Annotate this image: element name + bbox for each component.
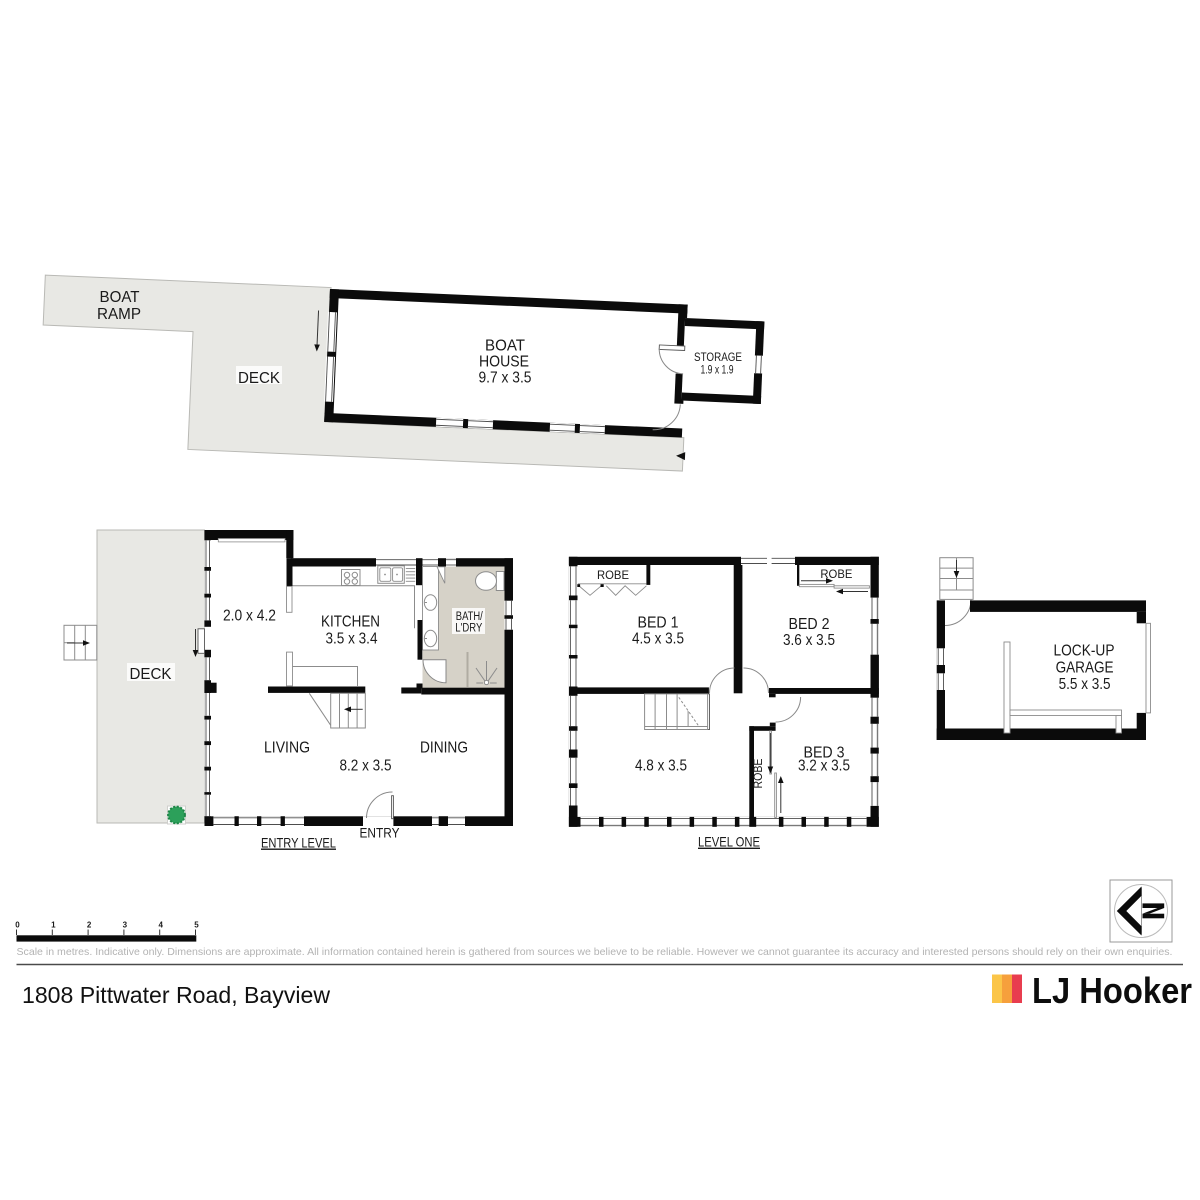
svg-text:5.5 x 3.5: 5.5 x 3.5: [1059, 676, 1111, 693]
svg-text:3: 3: [123, 921, 128, 930]
svg-text:LEVEL ONE: LEVEL ONE: [698, 834, 760, 850]
svg-text:DECK: DECK: [130, 666, 173, 683]
svg-text:4.8 x 3.5: 4.8 x 3.5: [635, 758, 687, 775]
svg-text:9.7 x 3.5: 9.7 x 3.5: [479, 370, 532, 387]
svg-text:3.5 x 3.4: 3.5 x 3.4: [326, 631, 378, 648]
svg-text:3.6 x 3.5: 3.6 x 3.5: [783, 632, 835, 649]
svg-text:GARAGE: GARAGE: [1056, 660, 1114, 677]
svg-text:RAMP: RAMP: [97, 306, 141, 323]
svg-text:1.9 x 1.9: 1.9 x 1.9: [701, 363, 734, 377]
svg-text:DECK: DECK: [238, 370, 281, 387]
svg-text:ENTRY: ENTRY: [360, 826, 400, 841]
svg-text:5: 5: [194, 921, 199, 930]
svg-text:ROBE: ROBE: [753, 758, 765, 788]
svg-text:Scale in metres. Indicative on: Scale in metres. Indicative only. Dimens…: [17, 946, 1173, 958]
svg-text:LIVING: LIVING: [264, 739, 310, 756]
svg-text:ROBE: ROBE: [820, 567, 852, 581]
svg-text:1: 1: [51, 921, 56, 930]
svg-text:2: 2: [87, 921, 92, 930]
svg-text:KITCHEN: KITCHEN: [321, 613, 380, 630]
svg-text:4.5 x 3.5: 4.5 x 3.5: [632, 631, 684, 648]
svg-text:BOAT: BOAT: [100, 289, 141, 306]
svg-text:1808 Pittwater Road, Bayview: 1808 Pittwater Road, Bayview: [22, 982, 330, 1008]
svg-text:L'DRY: L'DRY: [455, 620, 482, 634]
svg-text:LOCK-UP: LOCK-UP: [1054, 643, 1115, 660]
svg-text:ROBE: ROBE: [597, 568, 629, 582]
svg-text:3.2 x 3.5: 3.2 x 3.5: [798, 758, 850, 775]
svg-text:ENTRY LEVEL: ENTRY LEVEL: [261, 835, 336, 851]
svg-text:0: 0: [15, 921, 20, 930]
svg-text:HOUSE: HOUSE: [479, 354, 529, 371]
svg-text:BED 1: BED 1: [638, 615, 679, 632]
svg-text:BED 2: BED 2: [789, 616, 830, 633]
svg-text:2.0 x 4.2: 2.0 x 4.2: [223, 608, 276, 625]
svg-text:8.2 x 3.5: 8.2 x 3.5: [340, 758, 392, 775]
svg-text:LJ Hooker: LJ Hooker: [1032, 970, 1192, 1011]
svg-text:BOAT: BOAT: [485, 338, 526, 355]
svg-text:4: 4: [158, 921, 163, 930]
svg-text:DINING: DINING: [420, 739, 468, 756]
